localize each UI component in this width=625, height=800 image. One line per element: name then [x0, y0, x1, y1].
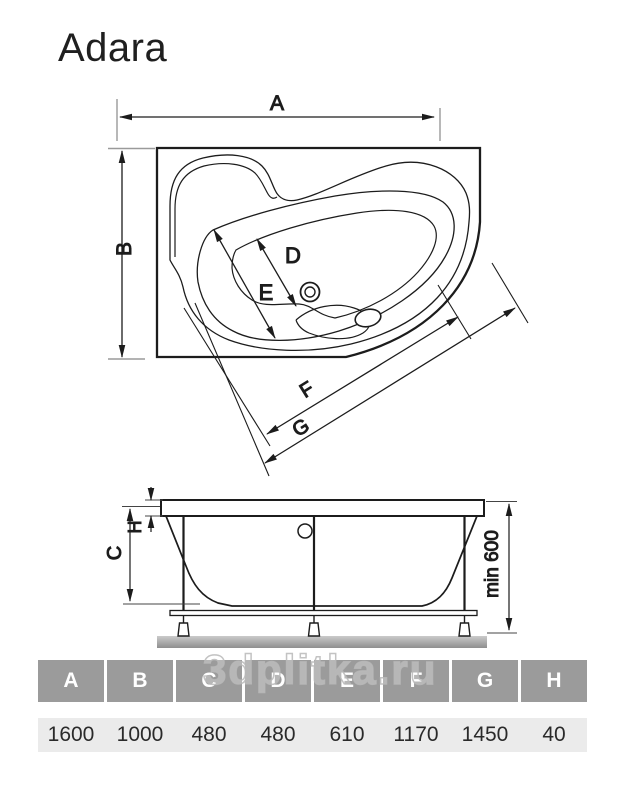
top-view-drawing: A B D E F G [108, 92, 528, 476]
dimension-min-height: min 600 [482, 502, 517, 634]
dim-label-b: B [113, 242, 136, 256]
dimension-a: A [117, 92, 440, 141]
dim-label-min-height: min 600 [482, 530, 503, 598]
table-value-cell: 1000 [107, 718, 173, 752]
dim-label-c: C [104, 546, 126, 560]
drain-outer-circle [301, 283, 320, 302]
table-header-cell: F [383, 660, 449, 702]
dimensions-table: A B C D E F G H 1600 1000 480 480 610 11… [38, 660, 587, 752]
table-value-cell: 1450 [452, 718, 518, 752]
dim-label-h: H [125, 521, 145, 534]
table-value-cell: 480 [176, 718, 242, 752]
table-value-cell: 1600 [38, 718, 104, 752]
side-overflow-circle [298, 524, 312, 538]
dim-label-f: F [296, 377, 318, 402]
table-value-row: 1600 1000 480 480 610 1170 1450 40 [38, 718, 587, 752]
table-header-row: A B C D E F G H [38, 660, 587, 702]
table-value-cell: 610 [314, 718, 380, 752]
frame-feet [178, 616, 470, 637]
dim-label-d: D [285, 243, 301, 268]
table-value-cell: 40 [521, 718, 587, 752]
side-view-drawing: H C min 600 [104, 487, 517, 648]
fg-extension-right-2 [492, 263, 528, 323]
tub-rim-bar [161, 500, 484, 516]
ground-strip [157, 636, 487, 648]
table-header-cell: B [107, 660, 173, 702]
table-header-cell: D [245, 660, 311, 702]
table-value-cell: 480 [245, 718, 311, 752]
dim-label-a: A [270, 92, 284, 115]
dim-label-e: E [259, 280, 274, 305]
tub-side-silhouette [166, 516, 477, 606]
table-header-cell: E [314, 660, 380, 702]
table-header-cell: A [38, 660, 104, 702]
product-dimension-page: { "title": "Adara", "watermark": "3dplit… [0, 0, 625, 800]
dimension-b: B [108, 149, 155, 360]
table-header-cell: H [521, 660, 587, 702]
dimension-h: H [125, 487, 163, 534]
table-header-cell: G [452, 660, 518, 702]
frame-rail [170, 611, 477, 616]
table-header-cell: C [176, 660, 242, 702]
table-value-cell: 1170 [383, 718, 449, 752]
dimension-c: C [104, 507, 200, 605]
